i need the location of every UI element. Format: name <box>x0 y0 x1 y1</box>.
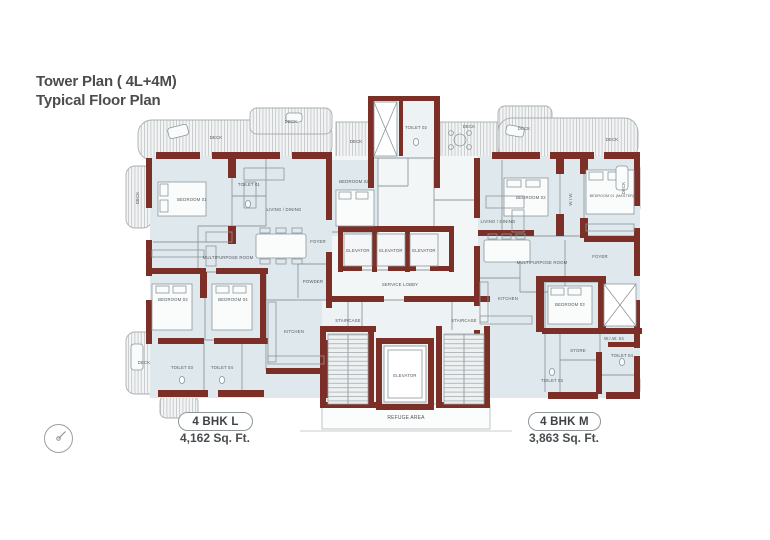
unit-area-right: 3,863 Sq. Ft. <box>516 431 612 445</box>
deck-label: Deck <box>138 360 151 365</box>
unit-pill-4bhk-l: 4 BHK L <box>178 412 253 431</box>
floor-plan-page: Tower Plan ( 4L+4M) Typical Floor Plan <box>0 0 770 540</box>
deck-label: Deck <box>135 192 140 205</box>
room-label-bedroom01-l: Bedroom 01 <box>177 197 207 202</box>
room-label-bedroom02-r: Bedroom 02 <box>516 195 546 200</box>
room-label-bedroom04-l: Bedroom 04 <box>218 297 248 302</box>
room-label-store-r: Store <box>570 348 585 353</box>
core-label-refuge-area: Refuge Area <box>387 415 425 421</box>
compass-icon <box>44 424 73 453</box>
deck-label: Deck <box>350 139 363 144</box>
core-label-staircase: Staircase <box>335 318 360 323</box>
room-label-bedroom03-r: Bedroom 03 <box>555 302 585 307</box>
unit-pill-4bhk-m: 4 BHK M <box>528 412 601 431</box>
room-label-multipurpose-l: Multipurpose Room <box>203 255 254 260</box>
deck-label: Deck <box>463 124 476 129</box>
room-label-master-r: Bedroom 01 (Master) <box>590 194 635 198</box>
room-label-toilet04-r: Toilet 04 <box>611 353 634 358</box>
service-shaft-right <box>604 284 636 326</box>
unit-name-left: 4 BHK L <box>192 416 238 428</box>
room-label-wiw-r: W.I.W. <box>568 192 573 205</box>
floor-plan-drawing: Deck Deck Deck Deck Deck Deck Deck Deck … <box>0 0 770 540</box>
core-label-staircase: Staircase <box>451 318 476 323</box>
room-label-foyer-r: Foyer <box>592 254 608 259</box>
unit-area-left: 4,162 Sq. Ft. <box>166 431 264 445</box>
room-label-toilet04-l: Toilet 04 <box>211 365 234 370</box>
room-label-toilet02-top: Toilet 02 <box>405 125 428 130</box>
unit-name-right: 4 BHK M <box>540 416 589 428</box>
deck-label: Deck <box>621 182 626 195</box>
core-label-elevator: Elevator <box>412 248 435 253</box>
room-label-foyer-l: Foyer <box>310 239 326 244</box>
core-label-fire-elevator: Elevator <box>393 373 416 378</box>
room-label-bedroom03-l: Bedroom 03 <box>158 297 188 302</box>
room-label-living-l: Living / Dining <box>267 207 302 212</box>
room-label-kitchen-r: Kitchen <box>498 296 518 301</box>
duct-shaft-top <box>374 102 397 156</box>
room-label-kitchen-l: Kitchen <box>284 329 304 334</box>
deck-label: Deck <box>518 126 531 131</box>
room-label-multipurpose-r: Multipurpose Room <box>517 260 568 265</box>
core-label-service-lobby: Service Lobby <box>382 282 418 287</box>
room-label-bedroom02-l: Bedroom 02 <box>339 179 369 184</box>
room-label-wiw04-r: W.I.W. 04 <box>604 336 624 341</box>
room-label-living-r: Living / Dining <box>481 219 516 224</box>
room-label-toilet03-r: Toilet 03 <box>541 378 564 383</box>
room-label-toilet01-l: Toilet 01 <box>238 182 261 187</box>
deck-label: Deck <box>210 135 223 140</box>
deck-label: Deck <box>285 119 298 124</box>
room-label-powder-l: Powder <box>303 279 323 284</box>
core-label-elevator: Elevator <box>346 248 369 253</box>
deck-label: Deck <box>606 137 619 142</box>
room-label-toilet03-l: Toilet 03 <box>171 365 194 370</box>
core-label-elevator: Elevator <box>379 248 402 253</box>
